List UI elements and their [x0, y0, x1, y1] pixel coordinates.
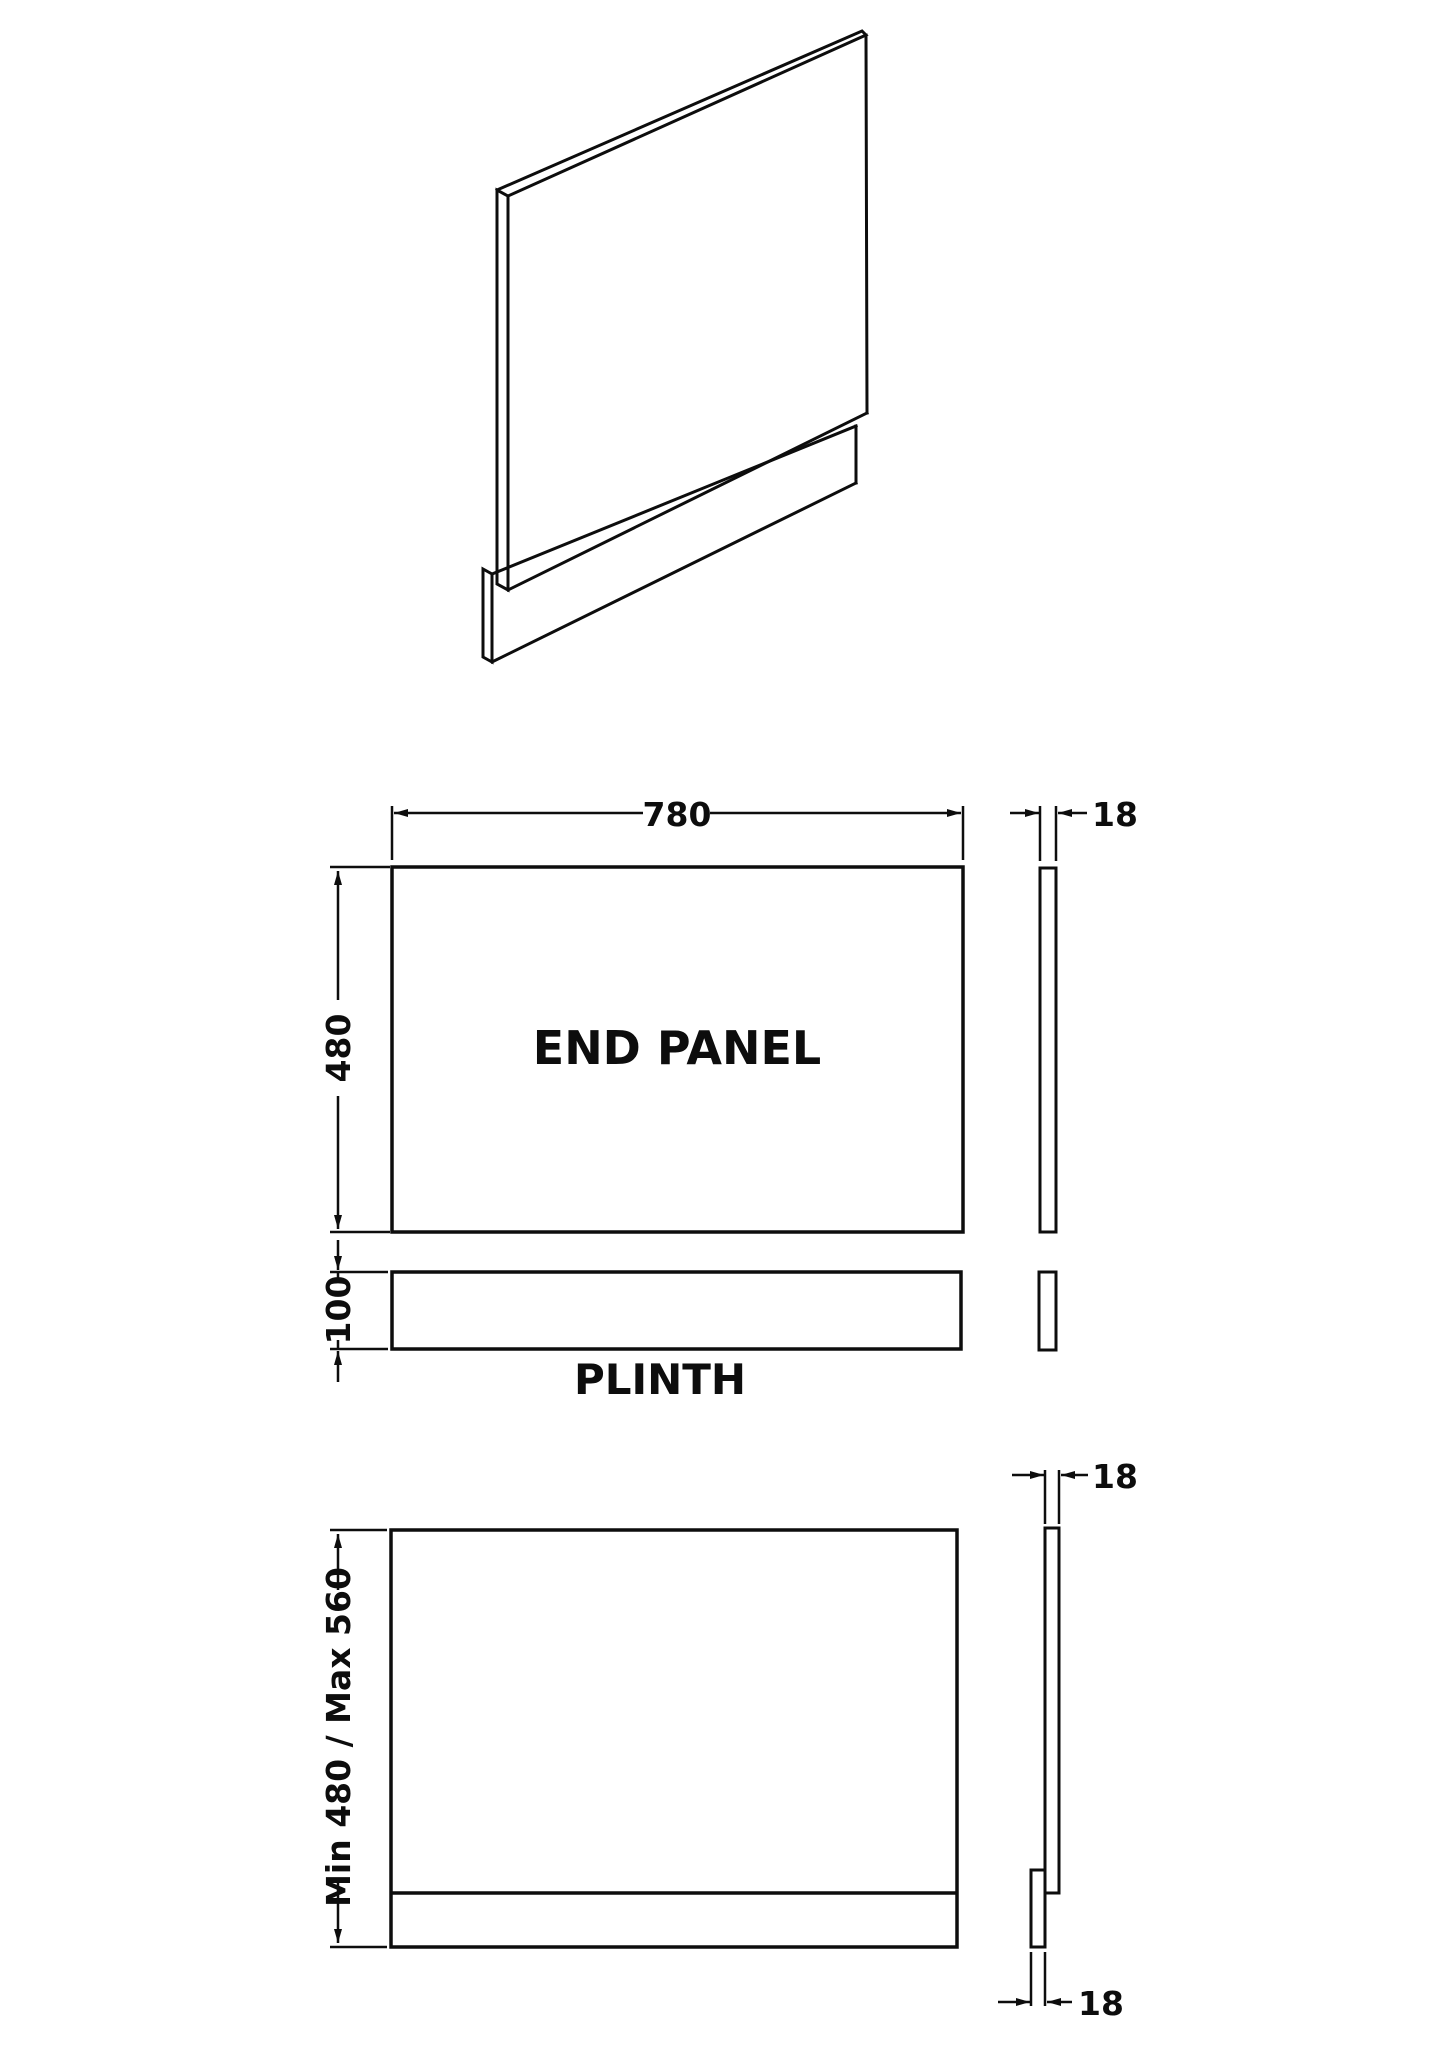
iso-panel-right-edge [866, 35, 867, 413]
dim-18-label-front: 18 [1092, 795, 1138, 834]
min-max-dim-label: Min 480 / Max 560 [319, 1567, 358, 1907]
installed-panel-side-profile [1045, 1528, 1059, 1893]
dim-18-label-installed-top: 18 [1092, 1457, 1138, 1496]
dim-480-label: 480 [319, 1014, 358, 1083]
panel-side-profile [1040, 868, 1056, 1232]
dim-18-label-installed-bottom: 18 [1078, 1984, 1124, 2023]
dim-100-label: 100 [319, 1276, 358, 1345]
technical-drawing-page: 780 480 END PANEL 18 [0, 0, 1445, 2045]
isometric-view [483, 31, 867, 662]
iso-panel-left-edge-face [497, 190, 508, 590]
plinth-side-profile [1039, 1272, 1056, 1350]
iso-plinth-left-edge-face [483, 569, 492, 662]
plinth-label: PLINTH [574, 1355, 746, 1404]
plinth-face [392, 1272, 961, 1349]
bath-panel-technical-drawing: 780 480 END PANEL 18 [0, 0, 1445, 2045]
end-panel-label: END PANEL [533, 1021, 821, 1075]
iso-panel-top-face [497, 31, 866, 196]
iso-panel-bottom-edge [508, 413, 867, 590]
installed-panel-face [391, 1530, 957, 1947]
dim-780-label: 780 [643, 795, 712, 834]
plinth-view: 100 PLINTH [319, 1240, 1056, 1404]
installed-plinth-side-profile [1031, 1870, 1045, 1947]
front-view: 780 480 END PANEL 18 [319, 795, 1138, 1232]
iso-plinth-top-edge [492, 426, 856, 574]
installation-view: Min 480 / Max 560 18 18 [319, 1457, 1138, 2023]
